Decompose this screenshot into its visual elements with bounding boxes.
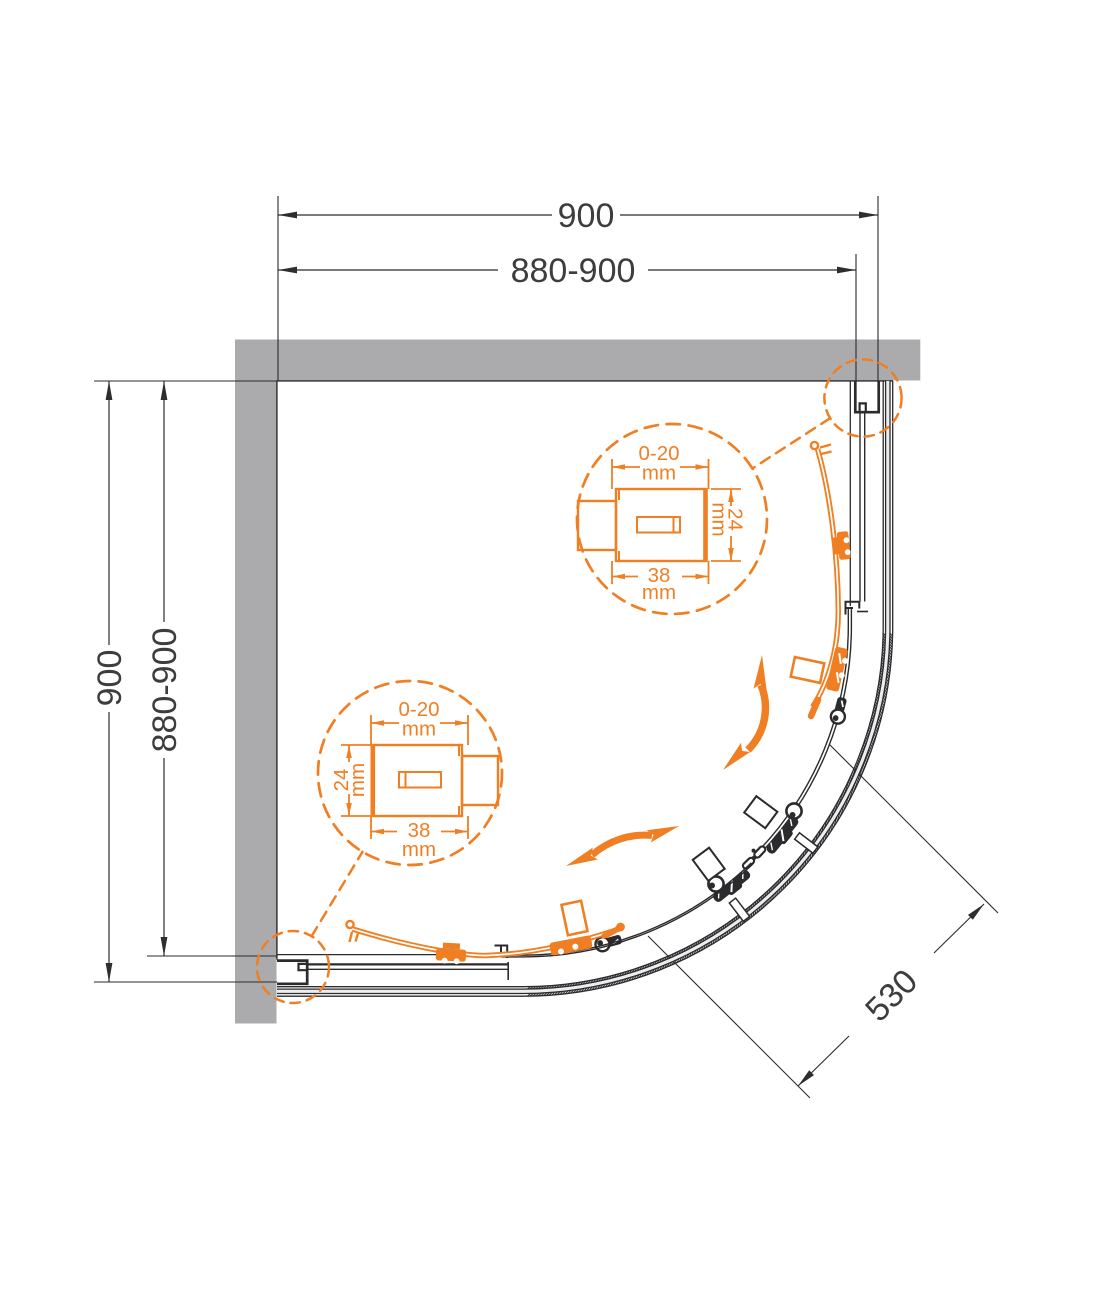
svg-text:mm: mm bbox=[346, 763, 369, 797]
svg-text:900: 900 bbox=[558, 197, 615, 235]
svg-text:880-900: 880-900 bbox=[146, 628, 184, 753]
svg-text:880-900: 880-900 bbox=[511, 252, 636, 290]
svg-text:900: 900 bbox=[91, 650, 129, 707]
svg-text:mm: mm bbox=[642, 581, 676, 604]
svg-text:mm: mm bbox=[402, 718, 436, 741]
svg-text:mm: mm bbox=[708, 502, 731, 536]
svg-text:mm: mm bbox=[642, 462, 676, 485]
svg-text:mm: mm bbox=[402, 838, 436, 861]
